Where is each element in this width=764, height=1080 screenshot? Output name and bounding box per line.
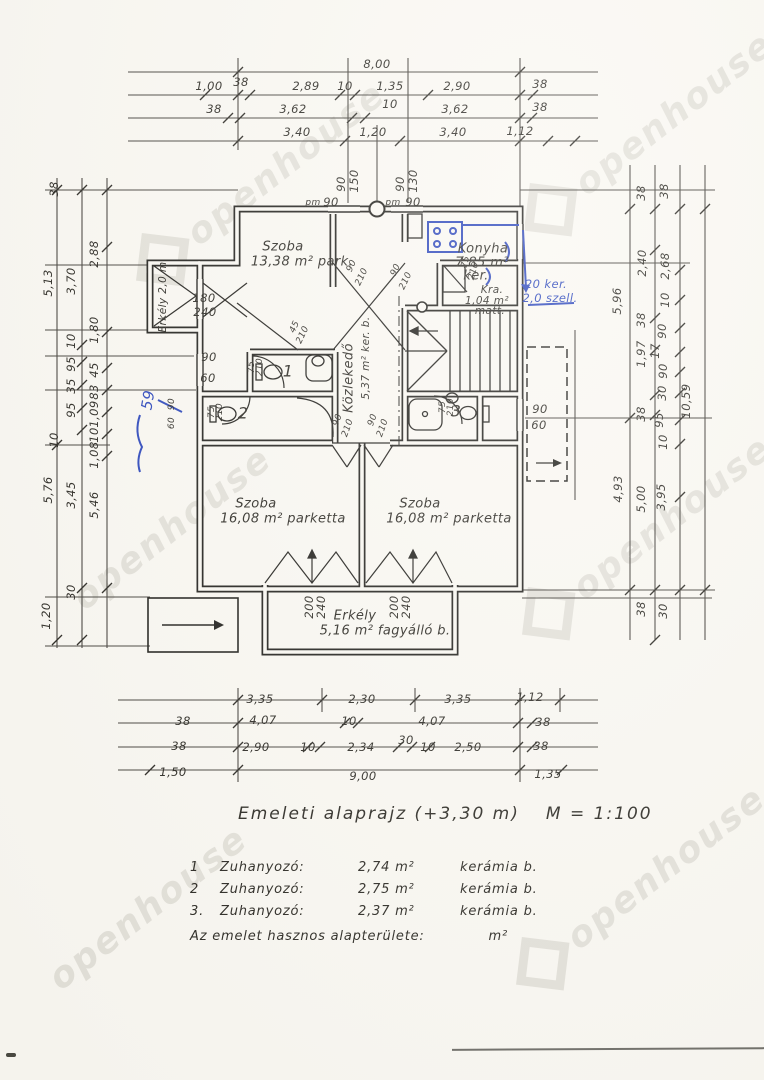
dim-label: 5,13: [41, 269, 55, 296]
room-label-konyha: Konyha: [458, 242, 509, 257]
dim-label: 90: [656, 363, 670, 378]
dim-label: 90: [405, 195, 420, 209]
dim-label: 90: [393, 176, 407, 191]
dim-label: 4,07: [418, 714, 445, 728]
dim-label: 16,08 m² parketta: [220, 512, 345, 527]
dim-label: 3,45: [64, 481, 78, 508]
dim-label: 38: [532, 100, 547, 114]
dim-label: 13,38 m² park.: [251, 255, 353, 270]
note-finish: kerámia b.: [460, 904, 538, 919]
dim-label: 60: [200, 371, 215, 385]
note-row: 2 Zuhanyozó: 2,75 m² kerámia b.: [190, 878, 538, 900]
dim-label: 90: [655, 323, 669, 338]
note-footer-unit: m²: [489, 929, 508, 944]
dim-label: 10: [658, 292, 672, 307]
dim-label: 90: [323, 195, 338, 209]
caption-scale: M = 1:100: [546, 804, 653, 824]
bath-number-1: 1: [283, 362, 294, 381]
note-num: 1: [190, 860, 220, 875]
room-label-szoba-2: Szoba: [235, 497, 276, 512]
dim-label: 240: [399, 595, 413, 618]
dim-label: 130: [406, 169, 420, 192]
dim-label: 1,20: [359, 125, 386, 139]
note-row: 3. Zuhanyozó: 2,37 m² kerámia b.: [190, 900, 538, 922]
room-label-szoba-1: Szoba: [262, 240, 303, 255]
dim-label: 38: [171, 739, 186, 753]
dim-label: 1,20: [39, 602, 53, 629]
dim-label: 5,46: [87, 491, 101, 518]
drawing-caption: Emeleti alaprajz (+3,30 m) M = 1:100: [238, 804, 653, 824]
dim-label: 17: [648, 343, 662, 358]
dim-label: 2,89: [292, 79, 319, 93]
dim-label: 38: [532, 77, 547, 91]
dim-label: 2,34: [347, 740, 374, 754]
dim-label: 30: [656, 603, 670, 618]
dim-label: 38: [233, 75, 248, 89]
dim-label: 1,80: [87, 316, 101, 343]
notes-block: 1 Zuhanyozó: 2,74 m² kerámia b. 2 Zuhany…: [190, 856, 538, 948]
scan-edge-speck: [6, 1053, 16, 1057]
dim-label: 38: [634, 601, 648, 616]
dim-label: 10: [337, 79, 352, 93]
bath-number-2: 2: [238, 404, 249, 423]
dim-label: 30: [398, 733, 413, 747]
note-name: Zuhanyozó:: [220, 904, 358, 919]
dim-label: 1,35: [376, 79, 403, 93]
dim-label: 3,62: [279, 102, 306, 116]
dim-label: 150: [347, 169, 361, 192]
note-row: 1 Zuhanyozó: 2,74 m² kerámia b.: [190, 856, 538, 878]
dim-label: 8,00: [363, 57, 390, 71]
dim-label: 3,70: [64, 267, 78, 294]
dim-label: 90: [167, 398, 177, 410]
dim-label: 38: [634, 185, 648, 200]
note-num: 3.: [190, 904, 220, 919]
dim-label: 45: [87, 362, 101, 377]
dim-label: 4,07: [249, 713, 276, 727]
dim-label: 3,95: [654, 483, 668, 510]
dim-label: 5,76: [41, 476, 55, 503]
dim-label: 1,08: [87, 441, 101, 468]
dim-label: 3,40: [439, 125, 466, 139]
note-name: Zuhanyozó:: [220, 882, 358, 897]
dim-label: 210: [215, 403, 225, 421]
note-finish: kerámia b.: [460, 860, 538, 875]
dim-label: 5,00: [634, 485, 648, 512]
dim-label: 2,90: [443, 79, 470, 93]
dim-label: 10: [47, 432, 61, 447]
dim-label: 60: [167, 417, 177, 429]
dim-label: 35: [64, 378, 78, 393]
note-area: 2,74 m²: [358, 860, 460, 875]
dim-label: 38: [533, 739, 548, 753]
room-label-erkely: Erkély: [334, 609, 377, 624]
dim-label: 38: [634, 406, 648, 421]
dim-label: 2,30: [348, 692, 375, 706]
scanned-floor-plan-page: openhouse openhouse openhouse openhouse …: [0, 0, 764, 1080]
dim-label: 1,97: [634, 340, 648, 367]
dim-label: 95: [64, 402, 78, 417]
dim-label: 95: [64, 356, 78, 371]
dim-label: 90: [389, 262, 403, 277]
dim-label: 3,40: [283, 125, 310, 139]
dim-label: 10: [64, 333, 78, 348]
dim-label: 2,90: [242, 740, 269, 754]
dim-label: 1,35: [534, 767, 561, 781]
dim-label: pm: [385, 198, 400, 208]
dim-label: 1,00: [195, 79, 222, 93]
dim-label: pm: [305, 198, 320, 208]
dim-label: 3,35: [246, 692, 273, 706]
room-label-szoba-3: Szoba: [399, 497, 440, 512]
dim-label: 38: [657, 183, 671, 198]
caption-title: Emeleti alaprajz (+3,30 m): [238, 804, 520, 824]
dim-label: 30: [64, 584, 78, 599]
note-area: 2,37 m²: [358, 904, 460, 919]
dim-label: 1,50: [159, 765, 186, 779]
dim-label: 30: [655, 385, 669, 400]
dim-label: 10: [87, 427, 101, 442]
room-label-kozlekedo: Közlekedő: [342, 343, 357, 413]
blue-note-ker: 20 ker.: [525, 277, 567, 291]
blue-note-szell: 2,0 szell.: [522, 291, 577, 305]
dim-label: 10: [382, 97, 397, 111]
dim-label: 10: [656, 434, 670, 449]
note-footer: Az emelet hasznos alapterülete: m²: [190, 924, 508, 948]
note-footer-text: Az emelet hasznos alapterülete:: [190, 929, 425, 944]
dim-label: 210: [354, 267, 371, 288]
dim-label: 16,08 m² parketta: [386, 512, 511, 527]
blue-note-59: 59: [137, 389, 158, 412]
dim-label: 2,88: [87, 240, 101, 267]
dim-label: 90: [201, 350, 216, 364]
dim-label: 38: [47, 181, 61, 196]
dim-label: 1,12: [506, 124, 533, 138]
dim-label: 2,50: [454, 740, 481, 754]
dim-label: 3,35: [444, 692, 471, 706]
dim-label: 5,96: [610, 287, 624, 314]
dim-label: 3,62: [441, 102, 468, 116]
dim-label: 10,59: [679, 384, 693, 419]
dim-label: 210: [446, 398, 456, 416]
dim-label: 95: [652, 412, 666, 427]
note-num: 2: [190, 882, 220, 897]
dim-label: 38: [634, 312, 648, 327]
dim-label: 210: [398, 271, 415, 292]
dim-label: 4,93: [611, 475, 625, 502]
dim-label: 2,40: [635, 249, 649, 276]
dim-label: 38: [206, 102, 221, 116]
dim-label: 5,16 m² fagyálló b.: [320, 624, 451, 639]
dim-label: 240: [193, 305, 216, 319]
dim-label: 90: [334, 176, 348, 191]
note-area: 2,75 m²: [358, 882, 460, 897]
dim-label: 10: [341, 714, 356, 728]
dim-label: 10: [420, 740, 435, 754]
note-finish: kerámia b.: [460, 882, 538, 897]
dim-label: matt.: [475, 305, 505, 317]
dim-label: 1,09: [87, 400, 101, 427]
dim-label: 240: [314, 595, 328, 618]
dim-label: 5,37 m² ker. b.: [360, 316, 372, 399]
note-name: Zuhanyozó:: [220, 860, 358, 875]
dim-label: 180: [192, 291, 215, 305]
dim-label: 60: [531, 418, 546, 432]
dim-label: 10: [300, 740, 315, 754]
dim-label: 38: [175, 714, 190, 728]
dim-label: 210: [255, 358, 265, 376]
dim-label: 38: [535, 715, 550, 729]
dim-label: 83: [87, 384, 101, 399]
dim-label: 9,00: [349, 769, 376, 783]
dim-label: 1,12: [516, 690, 543, 704]
room-label-erkely-left: Erkély 2,0 m: [157, 261, 169, 332]
dim-label: 2,68: [658, 252, 672, 279]
dim-label: 90: [532, 402, 547, 416]
